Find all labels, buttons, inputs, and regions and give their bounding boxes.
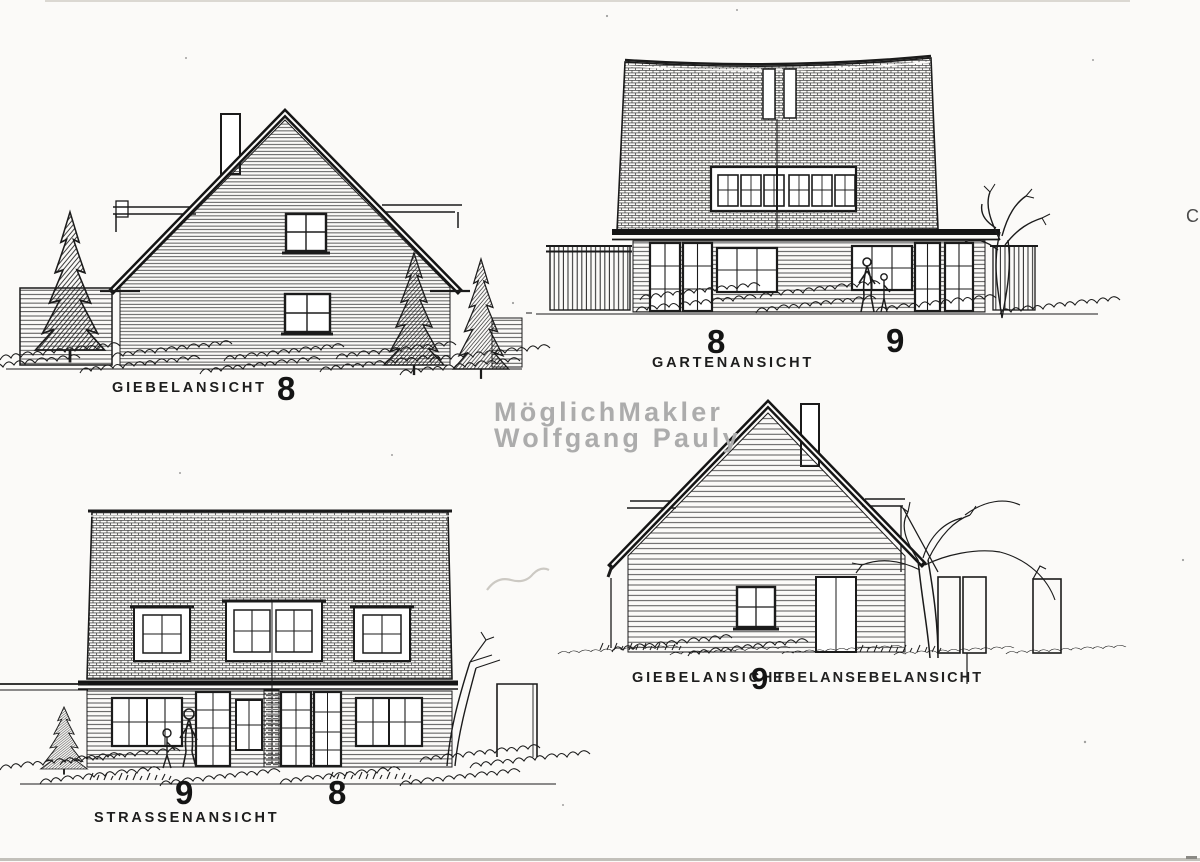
entrance-door [196, 692, 230, 766]
conifer-tree [41, 707, 88, 775]
lower-window [281, 294, 333, 334]
entrance-door [314, 692, 341, 766]
misprint-overlap-text: EBELANSEBELANSICHT [773, 670, 983, 686]
street-elevation [0, 511, 590, 786]
center-dormer-window [222, 601, 326, 661]
edge-artifact-mark: C [1186, 206, 1199, 227]
conifer-tree [36, 212, 105, 362]
skylight [763, 69, 775, 119]
scan-edge-bottom [0, 858, 1200, 861]
double-window-right [356, 698, 422, 746]
eaves-fascia [612, 232, 1000, 240]
house-8-gable-elevation [0, 113, 550, 379]
fence-panels [938, 566, 1061, 684]
side-window [236, 700, 262, 750]
house-number-9: 9 [751, 663, 768, 694]
house-number-8: 8 [277, 372, 295, 405]
house-number-8: 8 [328, 776, 346, 809]
dormer-window [350, 607, 414, 661]
dormer-window [130, 607, 194, 661]
watermark-line-1: MöglichMakler [494, 399, 741, 425]
ground-line [526, 313, 1098, 314]
entrance-door [281, 692, 311, 766]
scanned-elevation-sheet: MöglichMakler Wolfgang Pauly GIEBELANSIC… [0, 0, 1200, 862]
left-fence [546, 246, 632, 310]
scan-edge-corner [1186, 856, 1197, 859]
scan-smudge [487, 569, 549, 590]
house-number-8: 8 [707, 325, 725, 358]
skylight [784, 69, 796, 118]
roof-window-band [711, 167, 856, 211]
garden-elevation [526, 56, 1120, 318]
side-doorway [816, 577, 856, 652]
caption-garden-view: GARTENANSICHT [652, 355, 814, 371]
caption-street-view: STRASSENANSICHT [94, 810, 279, 826]
house-number-9: 9 [175, 776, 193, 809]
gable-window [733, 587, 779, 629]
broker-watermark: MöglichMakler Wolfgang Pauly [494, 399, 741, 451]
upper-window [282, 214, 330, 253]
left-fence-line [0, 684, 88, 690]
watermark-line-2: Wolfgang Pauly [494, 425, 741, 451]
caption-gable-top-left: GIEBELANSICHT [112, 380, 267, 396]
double-window-left [112, 698, 182, 746]
masonry-pier [264, 690, 279, 767]
house-number-9: 9 [886, 324, 904, 357]
dead-tree [447, 632, 500, 766]
eaves-fascia [78, 683, 458, 689]
